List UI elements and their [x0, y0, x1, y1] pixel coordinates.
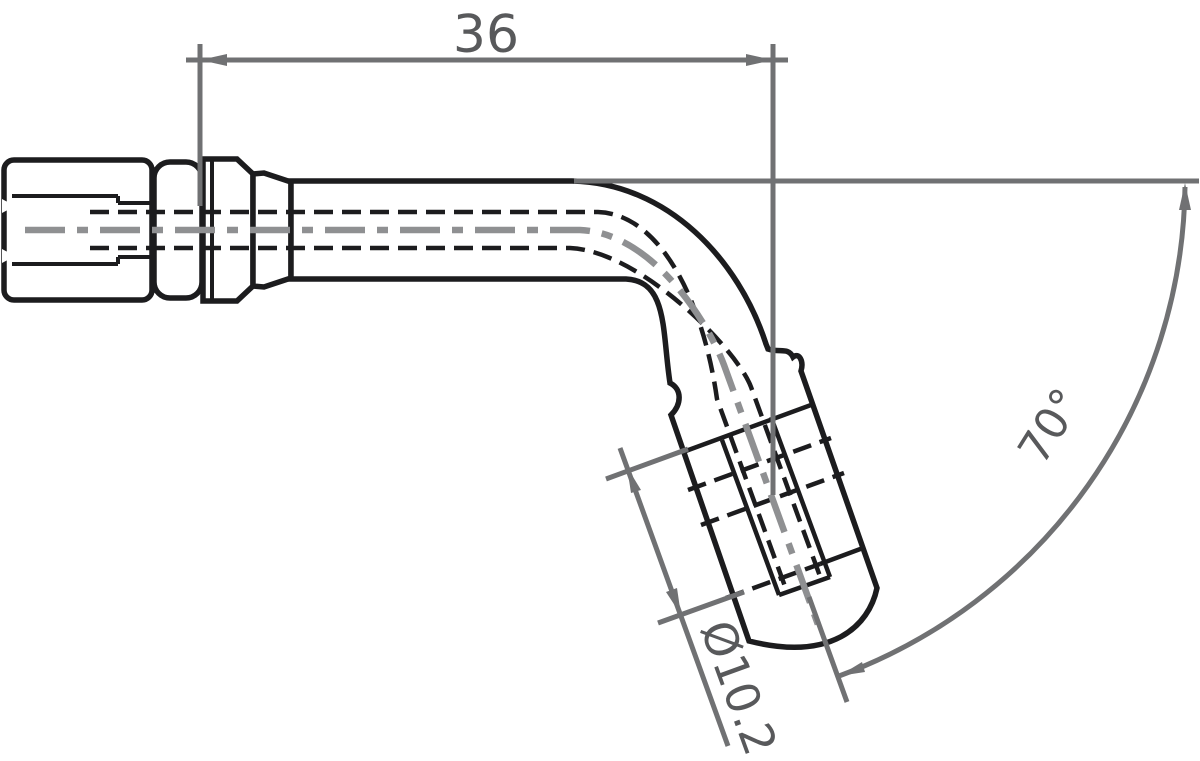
arrowhead-right	[746, 54, 773, 66]
angle-arc	[839, 187, 1185, 676]
diameter-arrowhead-2	[666, 588, 681, 615]
arc-arrowhead-top	[1179, 183, 1191, 210]
angle-dimension-label: 70°	[1008, 380, 1093, 473]
arc-arrowhead-bottom	[839, 662, 865, 676]
diameter-extension-line-1	[606, 449, 688, 479]
technical-drawing-canvas: 36 70° Ø10.2	[0, 0, 1200, 761]
arrowhead-left	[200, 54, 227, 66]
length-dimension-label: 36	[453, 5, 519, 65]
